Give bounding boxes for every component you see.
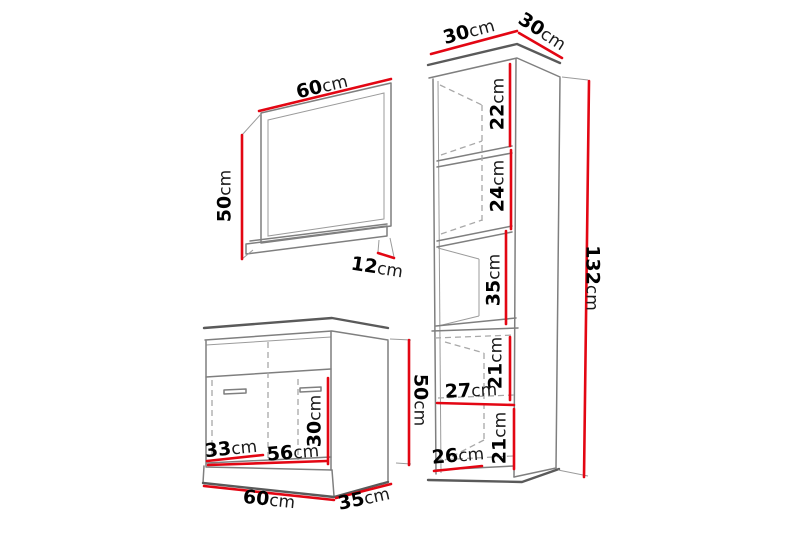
dim-vanity-height: 50cm [411,374,430,426]
dim-vanity-width: 60cm [242,488,296,512]
dim-vanity-inner-height: 30cm [306,395,325,447]
mirror-drawing [242,79,394,259]
dim-vanity-inner-width: 56cm [266,441,320,464]
dim-tall-base-width: 26cm [431,444,485,467]
furniture-dimension-diagram: 60cm 50cm 12cm 30cm 33cm 56cm 50cm 60cm … [0,0,800,533]
dim-tall-height: 132cm [583,245,602,311]
dim-tall-niche-height: 35cm [485,254,504,306]
dim-mirror-height: 50cm [216,170,235,222]
dim-tall-shelf-2: 24cm [489,160,508,212]
dim-tall-shelf-1: 22cm [489,78,508,130]
dim-tall-inner-width: 27cm [444,380,497,402]
dim-tall-compartment-2: 21cm [491,412,510,464]
dim-vanity-door-width: 33cm [204,437,258,461]
